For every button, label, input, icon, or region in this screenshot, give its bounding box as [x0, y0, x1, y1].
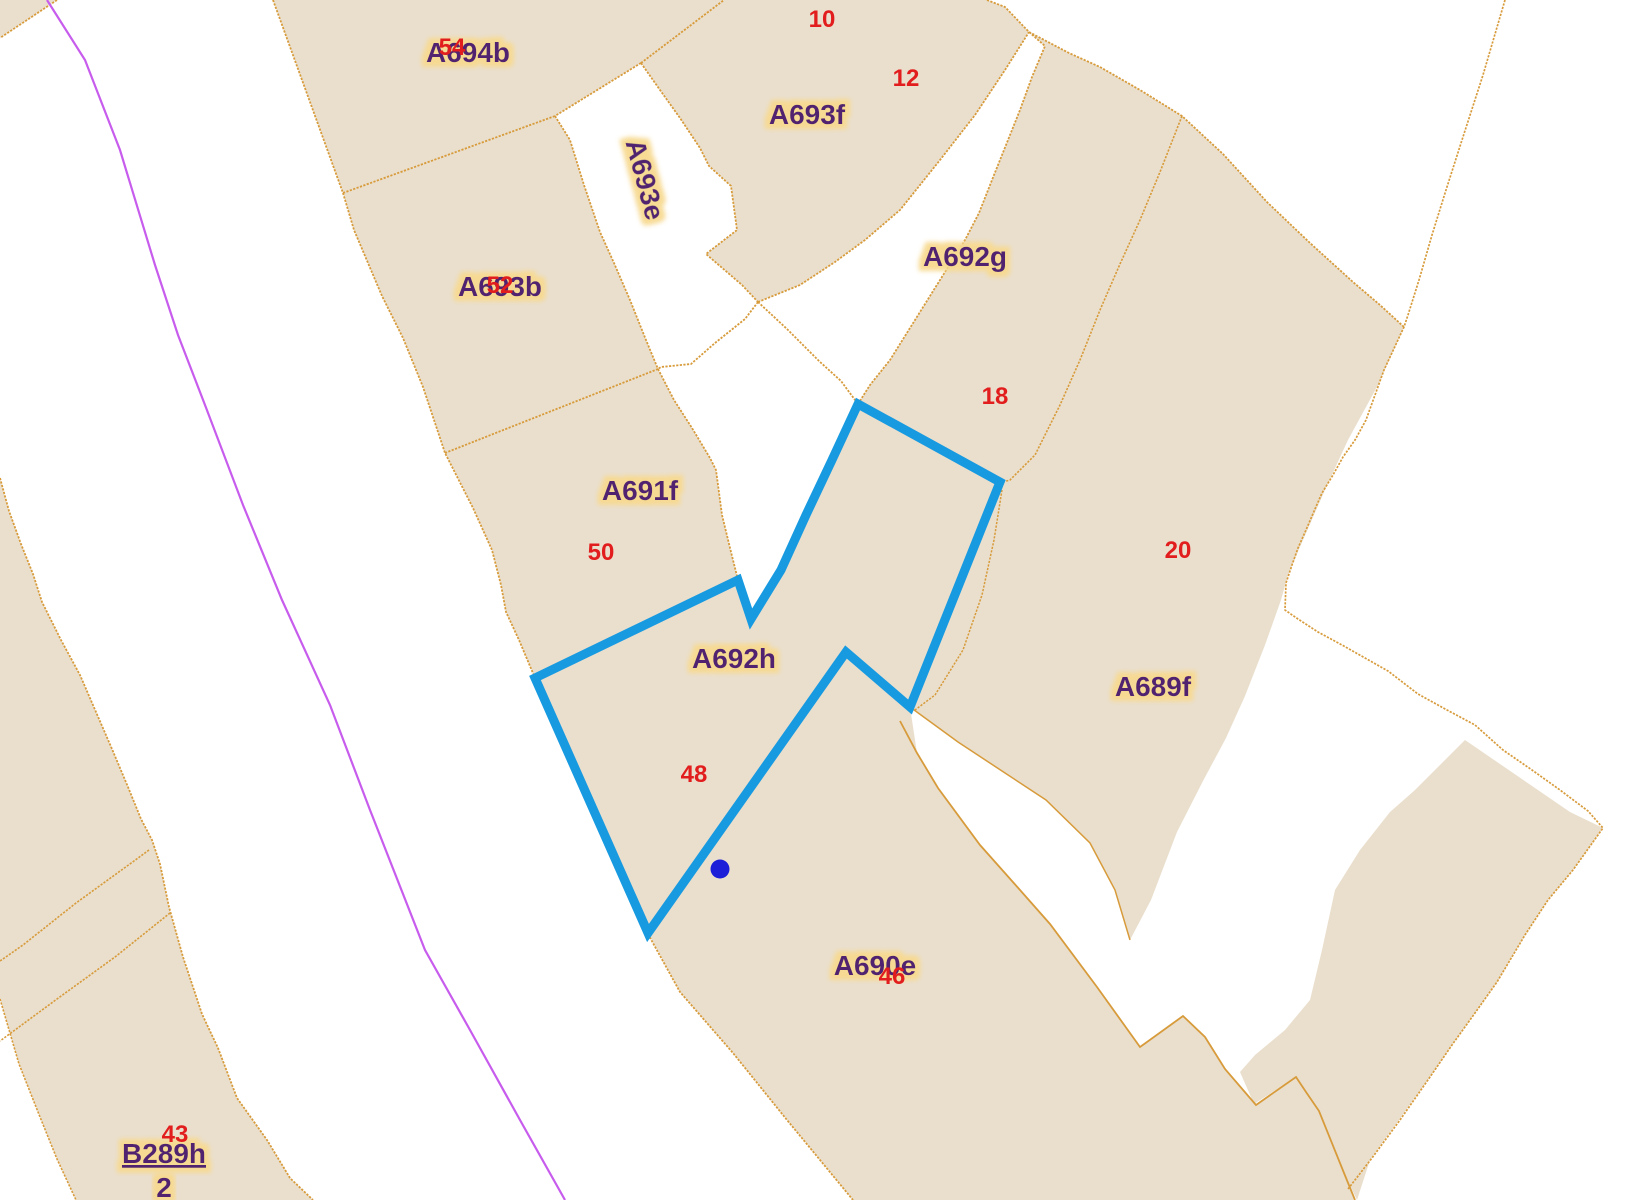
- svg-text:52: 52: [487, 272, 514, 299]
- svg-text:A692g: A692g: [923, 241, 1007, 272]
- svg-text:2: 2: [156, 1172, 172, 1200]
- svg-text:A693f: A693f: [769, 99, 846, 130]
- svg-text:46: 46: [879, 963, 906, 990]
- svg-text:A689f: A689f: [1115, 671, 1192, 702]
- svg-text:12: 12: [893, 65, 920, 92]
- svg-text:20: 20: [1165, 537, 1192, 564]
- svg-text:43: 43: [162, 1121, 189, 1148]
- svg-text:10: 10: [809, 6, 836, 33]
- svg-text:54: 54: [439, 34, 466, 61]
- svg-text:48: 48: [681, 761, 708, 788]
- svg-text:A691f: A691f: [602, 475, 679, 506]
- svg-text:18: 18: [982, 383, 1009, 410]
- svg-text:50: 50: [588, 539, 615, 566]
- svg-text:A692h: A692h: [692, 643, 776, 674]
